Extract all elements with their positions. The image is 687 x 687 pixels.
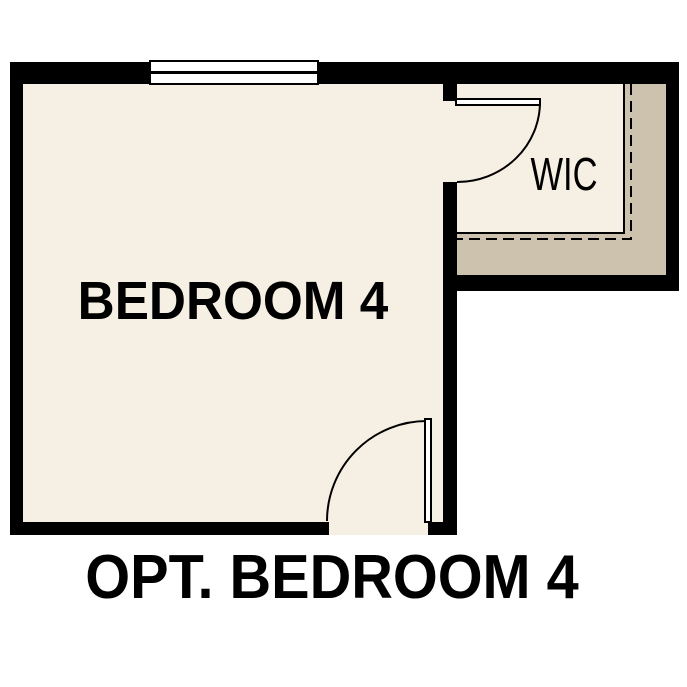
bedroom-door-panel (424, 418, 432, 523)
bedroom-label: BEDROOM 4 (43, 274, 423, 328)
wall-left (10, 62, 23, 535)
floor-plan: BEDROOM 4 WIC OPT. BEDROOM 4 (0, 0, 687, 687)
wic-label: WIC (452, 151, 677, 197)
window-symbol (149, 60, 319, 85)
wall-top (10, 62, 679, 84)
wall-divider (443, 182, 457, 535)
window-pane-divider (151, 71, 317, 74)
wall-bottom-left (10, 522, 329, 535)
wall-wic-bottom (443, 275, 679, 291)
wic-door-panel (455, 98, 541, 106)
plan-caption: OPT. BEDROOM 4 (53, 547, 611, 609)
